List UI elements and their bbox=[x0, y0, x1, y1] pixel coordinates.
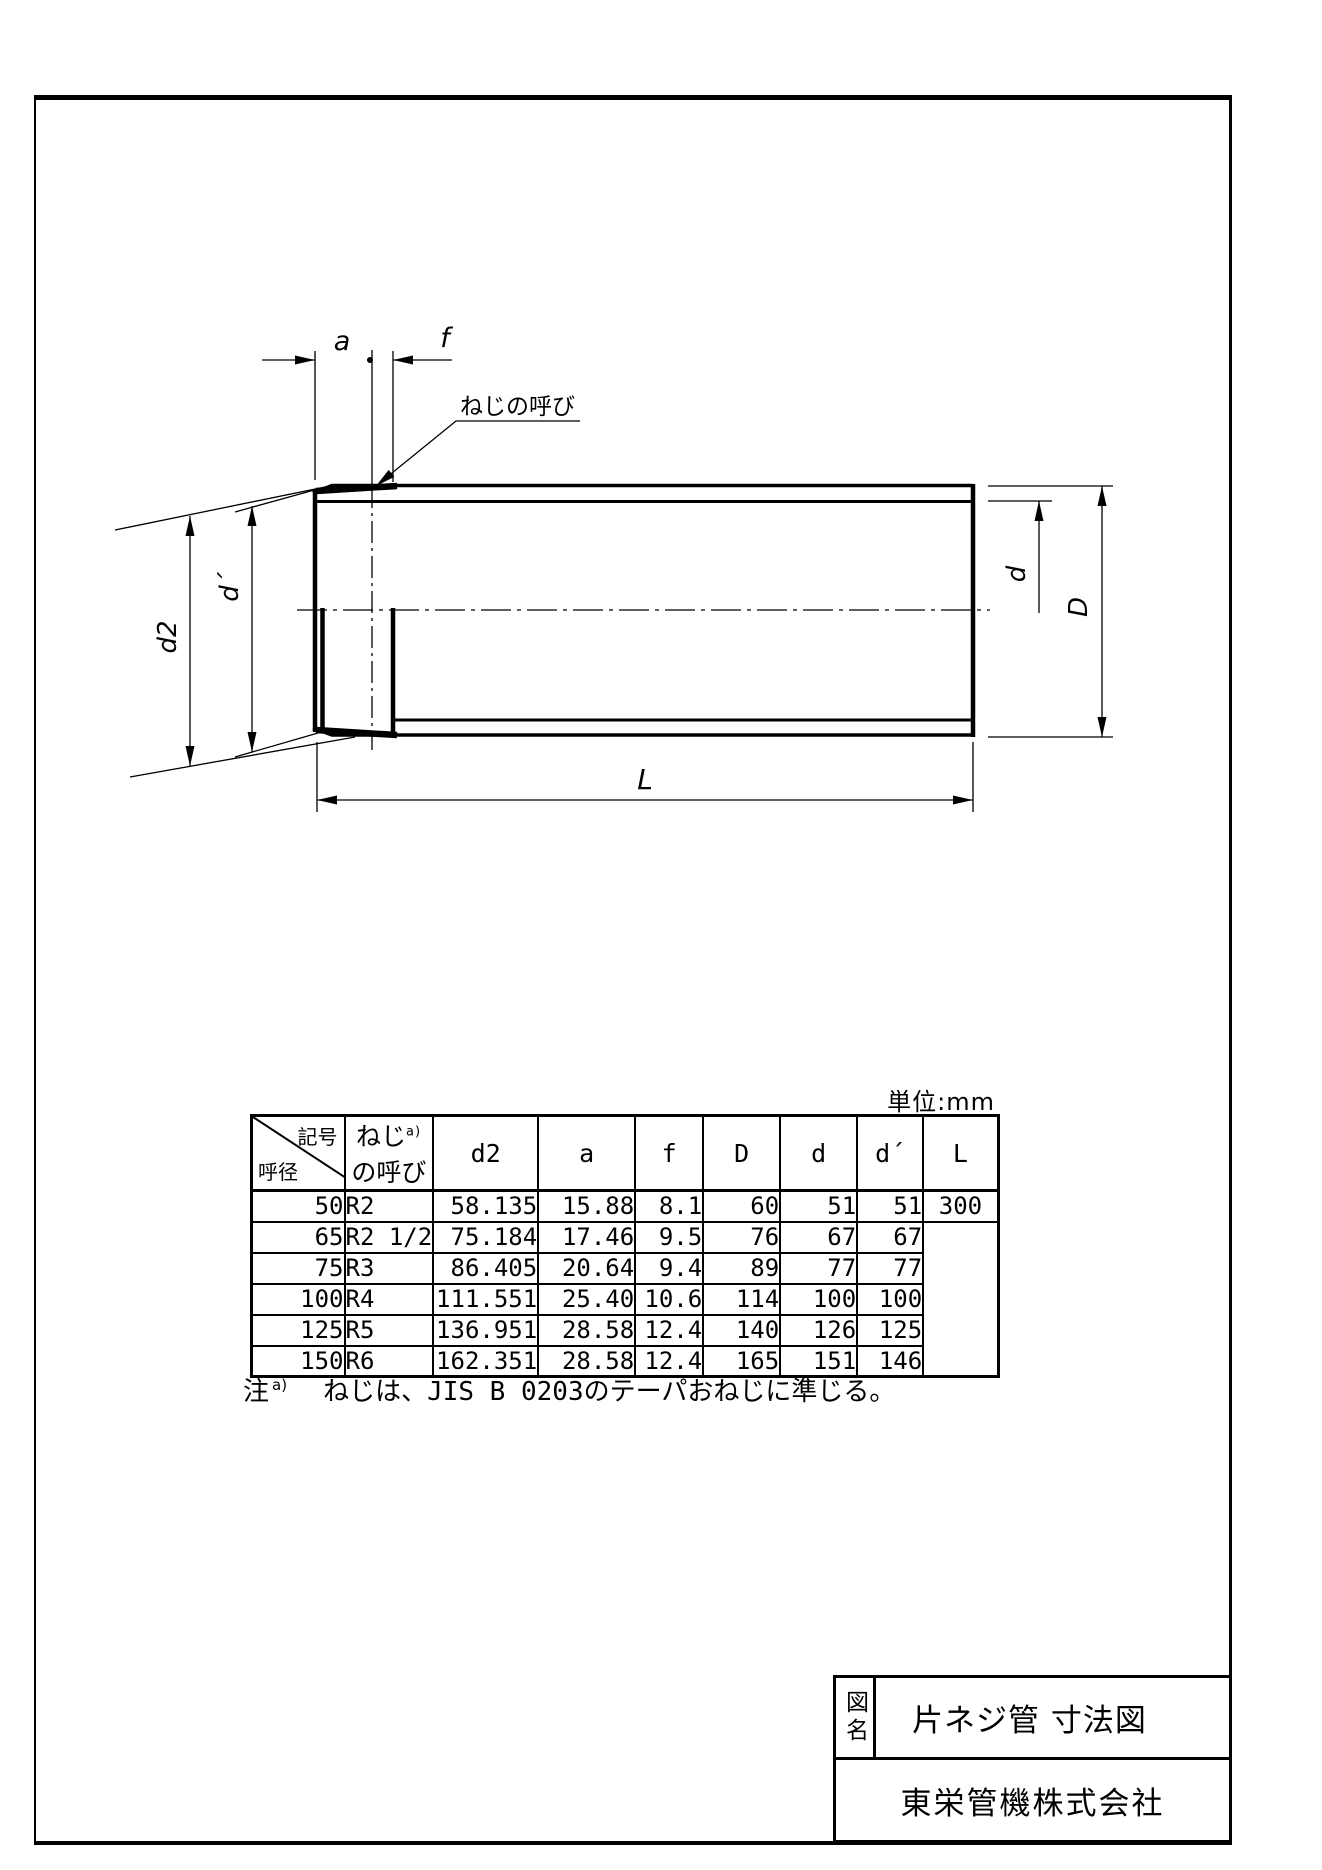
drawing-title: 片ネジ管 寸法図 bbox=[876, 1678, 1229, 1757]
cell-size: 125 bbox=[252, 1315, 345, 1346]
cell-d-prime: 100 bbox=[857, 1284, 923, 1315]
cell-d: 126 bbox=[780, 1315, 857, 1346]
technical-drawing: a f ねじの呼び d2 d´ bbox=[0, 0, 1322, 1870]
cell-size: 75 bbox=[252, 1253, 345, 1284]
cell-d-prime: 51 bbox=[857, 1191, 923, 1222]
cell-f: 9.4 bbox=[635, 1253, 703, 1284]
cell-d-prime: 67 bbox=[857, 1222, 923, 1253]
col-header-thread: ねじa) の呼び bbox=[345, 1116, 434, 1191]
header-row: 記号 呼径 ねじa) の呼び d2 a f D d d´ L bbox=[252, 1116, 999, 1191]
dimension-d: d bbox=[988, 501, 1052, 613]
label-d2: d2 bbox=[153, 620, 183, 653]
dimension-table: 記号 呼径 ねじa) の呼び d2 a f D d d´ L bbox=[250, 1114, 1000, 1378]
cell-D: 114 bbox=[703, 1284, 780, 1315]
cell-size: 50 bbox=[252, 1191, 345, 1222]
cell-a: 20.64 bbox=[538, 1253, 635, 1284]
cell-L-merged bbox=[923, 1222, 998, 1377]
centerlines bbox=[297, 350, 990, 750]
table-row: 125 R5 136.951 28.58 12.4 140 126 125 bbox=[252, 1315, 999, 1346]
corner-label-size: 呼径 bbox=[258, 1156, 298, 1185]
cell-D: 140 bbox=[703, 1315, 780, 1346]
cell-D: 89 bbox=[703, 1253, 780, 1284]
cell-a: 28.58 bbox=[538, 1315, 635, 1346]
label-thread-callout: ねじの呼び bbox=[460, 394, 575, 420]
cell-d2: 75.184 bbox=[433, 1222, 538, 1253]
cell-d: 67 bbox=[780, 1222, 857, 1253]
label-d-prime: d´ bbox=[215, 571, 245, 602]
dimension-a-f: a f bbox=[262, 323, 453, 482]
cell-d2: 111.551 bbox=[433, 1284, 538, 1315]
cell-f: 10.6 bbox=[635, 1284, 703, 1315]
col-header-L: L bbox=[923, 1116, 998, 1191]
cell-thread: R4 bbox=[345, 1284, 434, 1315]
corner-header-cell: 記号 呼径 bbox=[252, 1116, 345, 1191]
cell-f: 12.4 bbox=[635, 1315, 703, 1346]
table-row: 65 R2 1/2 75.184 17.46 9.5 76 67 67 bbox=[252, 1222, 999, 1253]
unit-label: 単位:mm bbox=[887, 1082, 995, 1117]
col-header-d: d bbox=[780, 1116, 857, 1191]
cell-thread: R2 bbox=[345, 1191, 434, 1222]
dimension-table-wrap: 記号 呼径 ねじa) の呼び d2 a f D d d´ L bbox=[250, 1114, 1000, 1378]
col-header-d2: d2 bbox=[433, 1116, 538, 1191]
cell-thread: R2 1/2 bbox=[345, 1222, 434, 1253]
title-block-top-row: 図名 片ネジ管 寸法図 bbox=[836, 1678, 1229, 1760]
thread-header-line2: の呼び bbox=[346, 1153, 433, 1189]
footnote-body: ねじは、JIS B 0203のテーパおねじに準じる。 bbox=[323, 1377, 895, 1407]
col-header-D: D bbox=[703, 1116, 780, 1191]
title-block-label: 図名 bbox=[836, 1678, 876, 1757]
cell-d: 100 bbox=[780, 1284, 857, 1315]
cell-L: 300 bbox=[923, 1191, 998, 1222]
label-f: f bbox=[440, 323, 453, 354]
cell-d-prime: 125 bbox=[857, 1315, 923, 1346]
cell-d-prime: 77 bbox=[857, 1253, 923, 1284]
dim-boundary-dot bbox=[367, 357, 373, 363]
title-block: 図名 片ネジ管 寸法図 東栄管機株式会社 bbox=[833, 1675, 1232, 1843]
table-row: 75 R3 86.405 20.64 9.4 89 77 77 bbox=[252, 1253, 999, 1284]
cell-d: 77 bbox=[780, 1253, 857, 1284]
dimension-D: D bbox=[988, 486, 1113, 737]
table-row: 50 R2 58.135 15.88 8.1 60 51 51 300 bbox=[252, 1191, 999, 1222]
cell-size: 100 bbox=[252, 1284, 345, 1315]
cell-d2: 86.405 bbox=[433, 1253, 538, 1284]
dimension-d-prime: d´ bbox=[215, 489, 318, 757]
table-row: 100 R4 111.551 25.40 10.6 114 100 100 bbox=[252, 1284, 999, 1315]
dimension-L: L bbox=[317, 742, 973, 812]
footnote-prefix: 注 bbox=[243, 1377, 269, 1407]
drawing-sheet: a f ねじの呼び d2 d´ bbox=[0, 0, 1322, 1870]
col-header-d-prime: d´ bbox=[857, 1116, 923, 1191]
arrow-f bbox=[393, 356, 413, 365]
cell-thread: R3 bbox=[345, 1253, 434, 1284]
cell-a: 15.88 bbox=[538, 1191, 635, 1222]
label-L: L bbox=[637, 763, 653, 796]
arrow-a bbox=[295, 356, 315, 365]
cell-f: 8.1 bbox=[635, 1191, 703, 1222]
cell-D: 60 bbox=[703, 1191, 780, 1222]
cell-d2: 136.951 bbox=[433, 1315, 538, 1346]
company-name: 東栄管機株式会社 bbox=[836, 1760, 1229, 1840]
cell-a: 25.40 bbox=[538, 1284, 635, 1315]
footnote: 注a)ねじは、JIS B 0203のテーパおねじに準じる。 bbox=[243, 1371, 895, 1408]
leader-thread-callout: ねじの呼び bbox=[376, 394, 580, 486]
col-header-f: f bbox=[635, 1116, 703, 1191]
cell-f: 9.5 bbox=[635, 1222, 703, 1253]
label-d: d bbox=[1002, 565, 1032, 582]
cell-D: 76 bbox=[703, 1222, 780, 1253]
cell-thread: R5 bbox=[345, 1315, 434, 1346]
cell-d2: 58.135 bbox=[433, 1191, 538, 1222]
corner-label-symbol: 記号 bbox=[298, 1121, 338, 1150]
col-header-a: a bbox=[538, 1116, 635, 1191]
thread-header-line1: ねじ bbox=[356, 1122, 406, 1151]
cell-d: 51 bbox=[780, 1191, 857, 1222]
cell-a: 17.46 bbox=[538, 1222, 635, 1253]
thread-header-sup: a) bbox=[406, 1125, 422, 1140]
label-D: D bbox=[1064, 597, 1094, 617]
cell-size: 65 bbox=[252, 1222, 345, 1253]
footnote-sup: a) bbox=[272, 1376, 287, 1394]
label-a: a bbox=[334, 326, 351, 357]
